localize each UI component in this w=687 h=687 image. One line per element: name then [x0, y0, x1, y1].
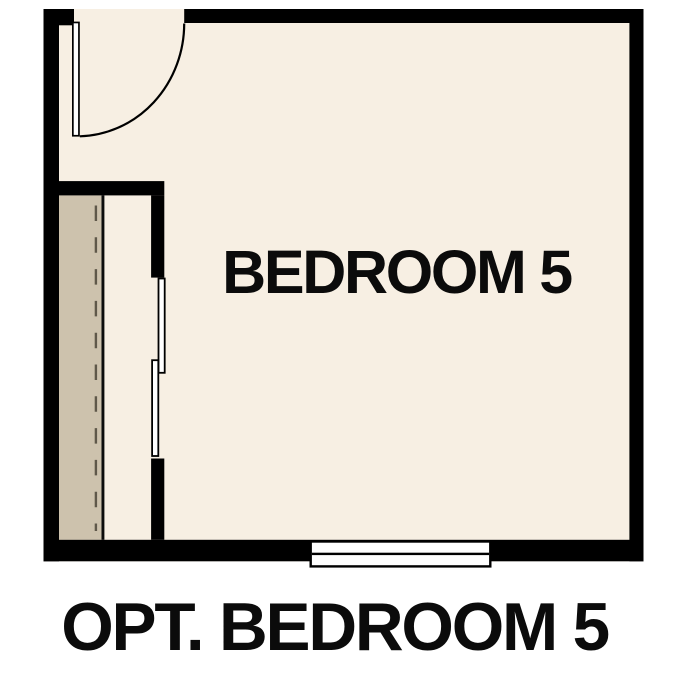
svg-text:BEDROOM 5: BEDROOM 5: [222, 238, 572, 306]
svg-text:OPT. BEDROOM 5: OPT. BEDROOM 5: [61, 590, 608, 665]
